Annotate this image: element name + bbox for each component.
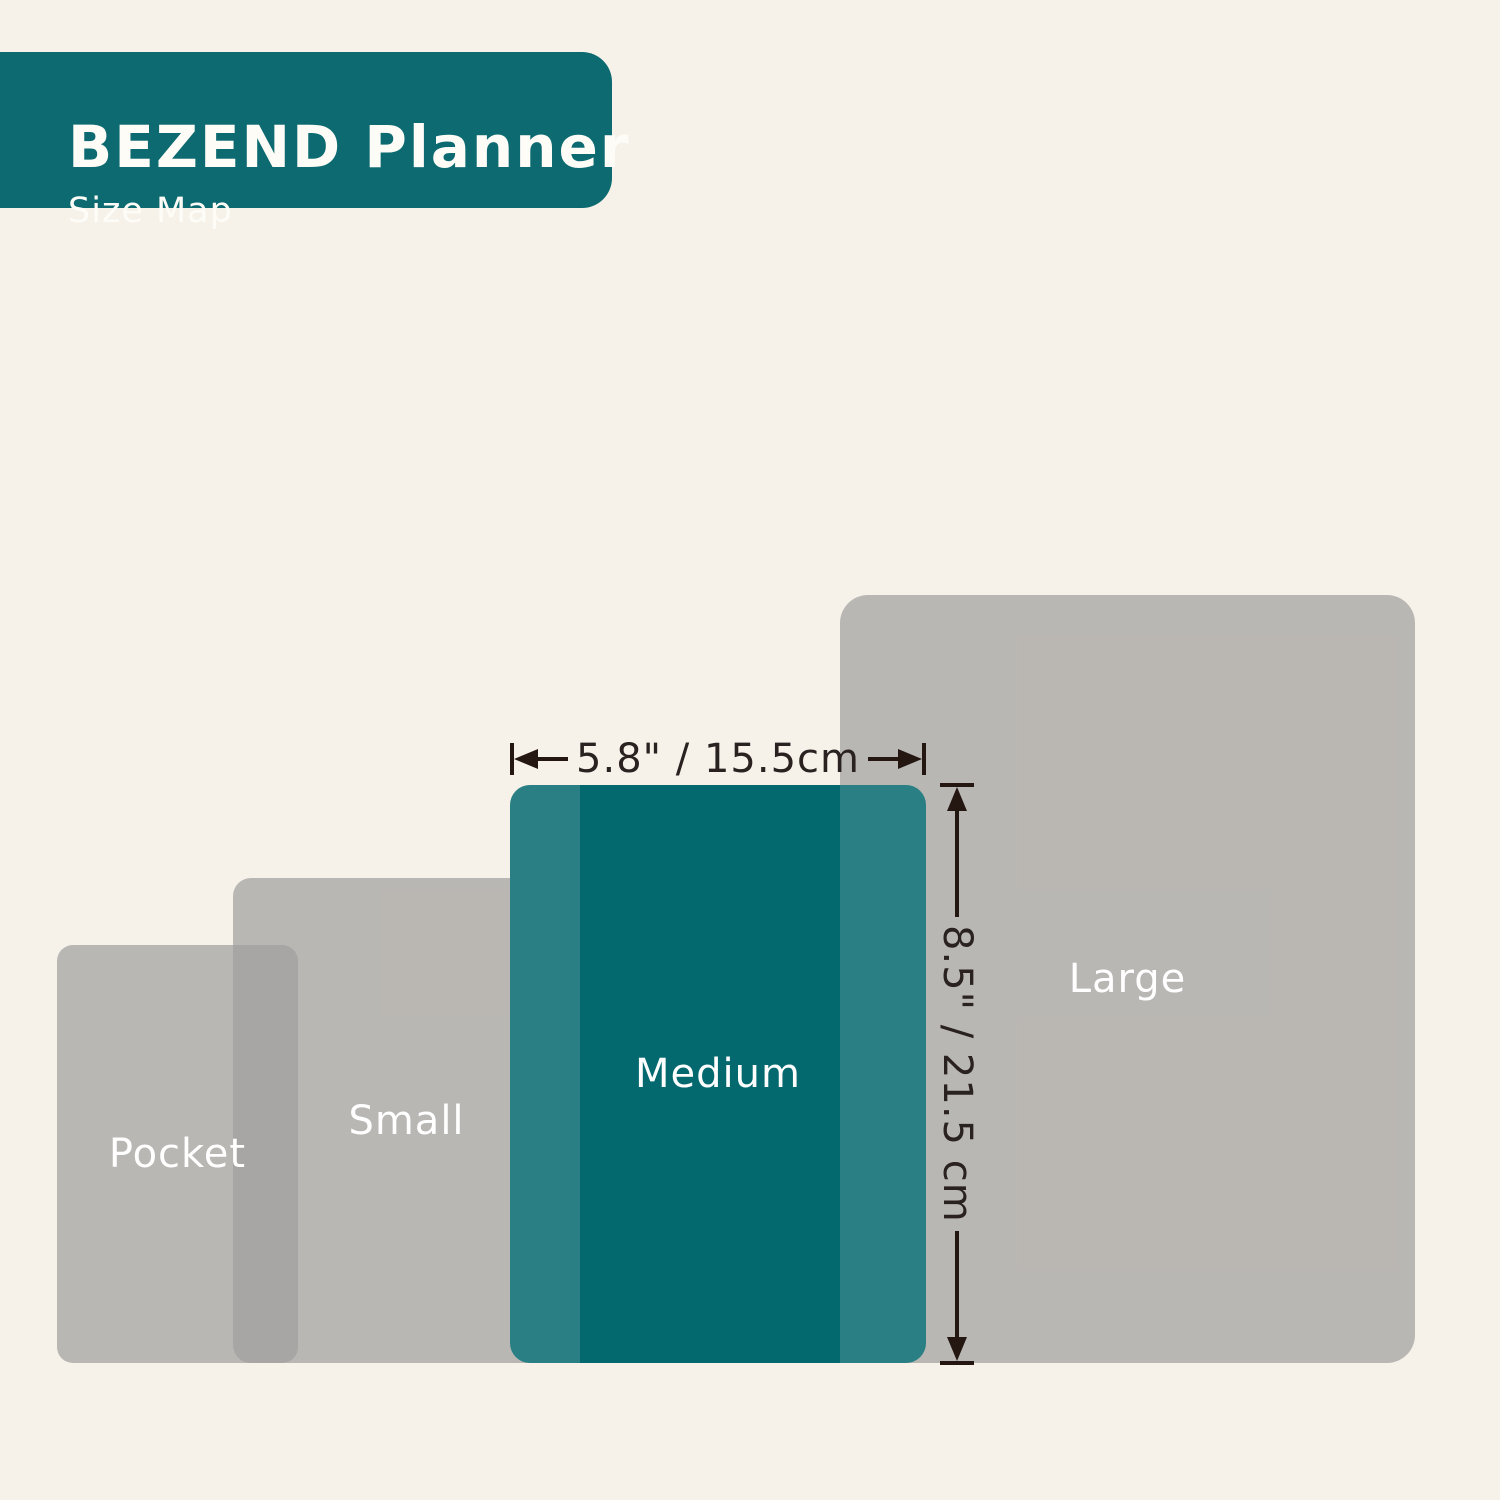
page-subtitle: Size Map <box>68 194 233 229</box>
dimension-line-segment <box>955 1231 959 1337</box>
arrowhead-left-icon <box>514 749 538 769</box>
dimension-line-segment <box>538 757 568 761</box>
width-dimension-label: 5.8" / 15.5cm <box>568 736 868 782</box>
page-title: BEZEND Planner <box>68 118 630 176</box>
size-rect-medium: Medium <box>510 785 926 1363</box>
size-rect-large: Large <box>840 595 1415 1363</box>
size-label-large: Large <box>1069 956 1187 1002</box>
arrowhead-down-icon <box>947 1337 967 1361</box>
dimension-tick-bottom <box>940 1361 974 1365</box>
medium-small-overlap <box>510 785 580 1363</box>
width-dimension: 5.8" / 15.5cm <box>510 737 926 781</box>
size-label-pocket: Pocket <box>109 1131 246 1177</box>
dimension-line-segment <box>955 811 959 917</box>
size-label-medium: Medium <box>635 1051 801 1097</box>
medium-large-overlap <box>840 785 926 1363</box>
size-map-infographic: BEZEND Planner Size Map Pocket Small Lar… <box>0 0 1500 1500</box>
dimension-line-segment <box>868 757 898 761</box>
height-dimension-label: 8.5" / 21.5 cm <box>934 917 980 1231</box>
dimension-tick-right <box>922 743 926 775</box>
header-banner: BEZEND Planner Size Map <box>0 52 612 208</box>
size-label-small: Small <box>348 1098 464 1144</box>
arrowhead-right-icon <box>898 749 922 769</box>
arrowhead-up-icon <box>947 787 967 811</box>
height-dimension: 8.5" / 21.5 cm <box>935 783 979 1365</box>
